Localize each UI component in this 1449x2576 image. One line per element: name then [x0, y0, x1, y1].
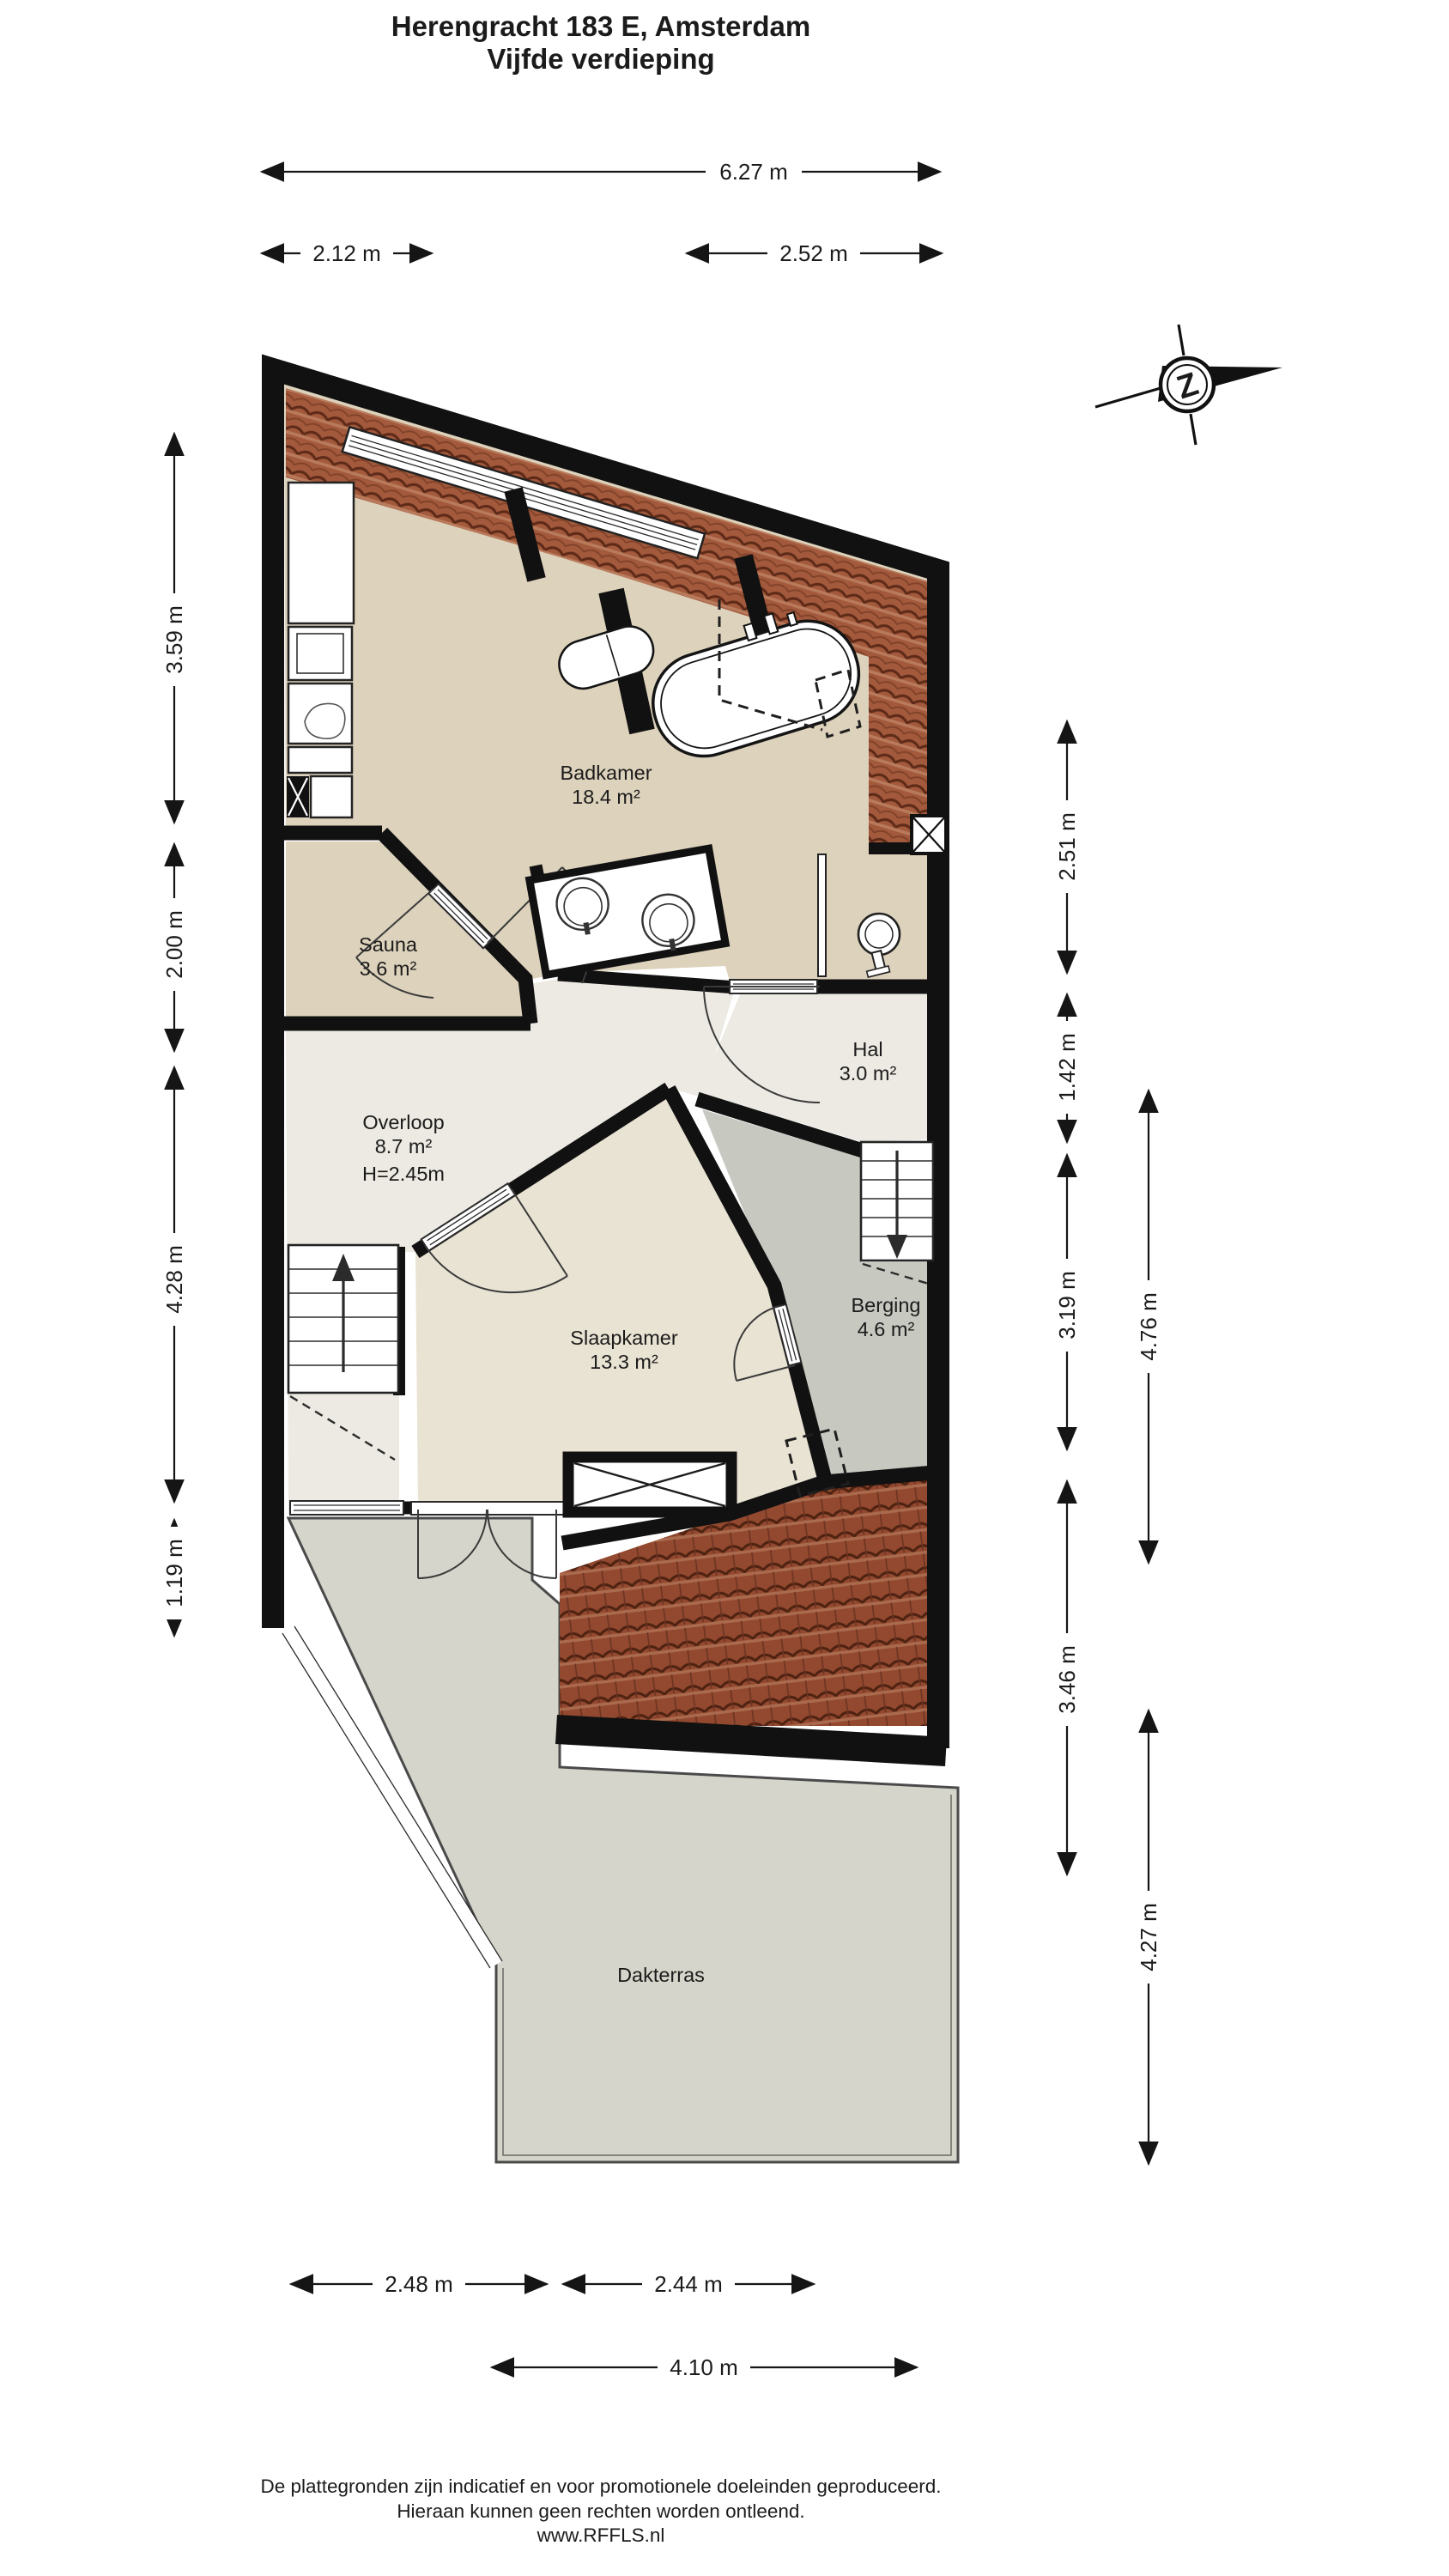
dim-left-4: 1.19 m [161, 1539, 187, 1607]
overloop-label: Overloop [362, 1111, 444, 1133]
dakterras-label: Dakterras [617, 1964, 705, 1986]
sauna-label: Sauna [359, 933, 418, 956]
berging-area: 4.6 m² [858, 1318, 915, 1340]
overloop-area: 8.7 m² [375, 1135, 433, 1157]
footer-disclaimer-line1: De plattegronden zijn indicatief en voor… [260, 2476, 941, 2497]
footer-website: www.RFFLS.nl [537, 2524, 665, 2546]
dim-bottom-left: 2.48 m [385, 2271, 453, 2297]
dim-right-outer-2: 4.27 m [1136, 1903, 1161, 1971]
page-title-line2: Vijfde verdieping [487, 43, 714, 75]
compass-north-icon: Z [1095, 325, 1282, 445]
floorplan-drawing: Herengracht 183 E, Amsterdam Vijfde verd… [0, 0, 1449, 2576]
bedroom-window-icon [290, 1501, 403, 1515]
slaapkamer-area: 13.3 m² [590, 1351, 658, 1373]
shaft-right-icon [912, 816, 946, 854]
dim-top-total: 6.27 m [719, 159, 788, 185]
dim-right-4: 3.46 m [1054, 1645, 1080, 1714]
floorplan-page: Herengracht 183 E, Amsterdam Vijfde verd… [0, 0, 1449, 2576]
hal-area: 3.0 m² [840, 1062, 897, 1084]
dim-right-3: 3.19 m [1054, 1271, 1080, 1340]
dim-top-left: 2.12 m [312, 240, 381, 266]
dim-top-right: 2.52 m [779, 240, 848, 266]
dim-right-1: 2.51 m [1054, 812, 1080, 881]
dim-bottom-total: 4.10 m [670, 2354, 738, 2380]
overloop-height: H=2.45m [362, 1163, 445, 1185]
bathroom-cabinets [288, 483, 354, 817]
shaft-left-icon [287, 776, 309, 817]
footer-disclaimer-line2: Hieraan kunnen geen rechten worden ontle… [397, 2500, 804, 2522]
washer-icon [297, 634, 343, 673]
berging-label: Berging [852, 1294, 921, 1316]
badkamer-label: Badkamer [560, 762, 652, 784]
sauna-area: 3.6 m² [360, 957, 417, 980]
dim-left-2: 2.00 m [161, 910, 187, 979]
radiator-icon [818, 854, 826, 976]
dim-right-outer-1: 4.76 m [1136, 1292, 1161, 1361]
hal-label: Hal [852, 1038, 882, 1060]
dim-left-3: 4.28 m [161, 1245, 187, 1314]
slaapkamer-label: Slaapkamer [570, 1327, 678, 1349]
page-title-line1: Herengracht 183 E, Amsterdam [391, 10, 810, 42]
dim-left-1: 3.59 m [161, 605, 187, 674]
dim-right-2: 1.42 m [1054, 1033, 1080, 1102]
badkamer-area: 18.4 m² [572, 786, 640, 808]
bottom-wall [556, 1729, 946, 1752]
dim-bottom-right: 2.44 m [654, 2271, 723, 2297]
bedroom-skylight-icon [568, 1457, 731, 1512]
